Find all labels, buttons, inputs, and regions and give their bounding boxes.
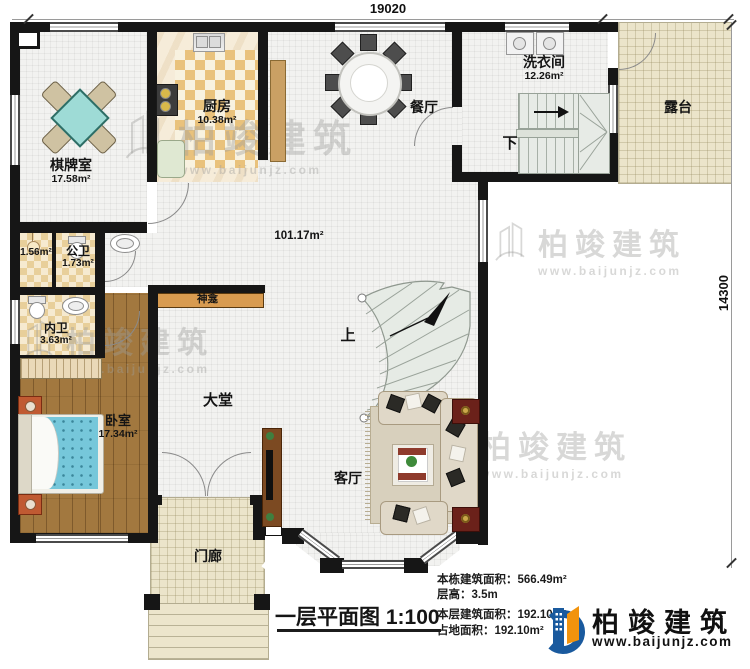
porch-pillar bbox=[254, 594, 270, 610]
room-area-bedroom: 17.34m² bbox=[90, 429, 146, 440]
nightstand bbox=[18, 494, 42, 515]
wall bbox=[258, 32, 268, 160]
info-value: 566.49m² bbox=[518, 574, 567, 586]
stairs-landing-lines bbox=[578, 93, 610, 172]
stove-burner bbox=[160, 101, 171, 112]
stairs-up-label: 上 bbox=[334, 328, 362, 344]
plant-stand bbox=[452, 399, 480, 424]
shrine-label: 神龛 bbox=[153, 294, 262, 305]
window bbox=[10, 95, 20, 165]
dimension-top: 19020 bbox=[356, 1, 420, 16]
info-line: 层高：3.5m bbox=[437, 586, 498, 602]
dining-table-center bbox=[350, 64, 388, 102]
porch-steps bbox=[148, 603, 269, 660]
room-label-porch: 门廊 bbox=[184, 549, 232, 564]
room-label-hall: 大堂 bbox=[192, 393, 244, 409]
room-label-chess: 棋牌室 bbox=[36, 158, 106, 173]
stairs-down-label: 下 bbox=[496, 136, 524, 152]
wall bbox=[452, 22, 462, 107]
porch-pillar bbox=[144, 594, 160, 610]
info-label: 本栋建筑面积： bbox=[437, 574, 518, 586]
stairs-down-flight bbox=[518, 137, 580, 174]
room-area-kitchen: 10.38m² bbox=[185, 115, 249, 126]
rug-fringe bbox=[365, 408, 370, 520]
dining-chair bbox=[360, 34, 377, 51]
small-room-area-label: 1.56m² bbox=[14, 248, 58, 259]
window bbox=[50, 22, 118, 32]
info-label: 占地面积： bbox=[437, 625, 495, 637]
plan-title-text: 一层平面图 bbox=[275, 606, 380, 629]
watermark-logo-icon bbox=[490, 220, 530, 262]
fridge bbox=[157, 140, 185, 178]
watermark-name: 柏竣建筑 bbox=[538, 220, 686, 264]
room-label-public-bath: 公卫 bbox=[58, 245, 98, 258]
bay-post bbox=[320, 558, 344, 573]
sink-basin bbox=[209, 36, 221, 48]
brand-url: www.baijunjz.com bbox=[592, 634, 733, 649]
washer-drum bbox=[543, 37, 556, 50]
tv bbox=[266, 450, 273, 500]
window bbox=[10, 300, 20, 344]
toilet-bowl bbox=[29, 302, 45, 319]
corner-column bbox=[16, 30, 40, 49]
pillow bbox=[449, 445, 467, 463]
wall bbox=[148, 495, 162, 505]
wash-basin-bowl bbox=[68, 301, 84, 311]
wash-basin-bowl bbox=[116, 238, 134, 249]
watermark-name: 柏竣建筑 bbox=[480, 422, 632, 467]
bed-sheet bbox=[32, 417, 59, 489]
watermark-url: www.baijunjz.com bbox=[480, 467, 632, 481]
room-label-terrace: 露台 bbox=[648, 100, 708, 115]
info-value: 3.5m bbox=[472, 589, 498, 601]
plant bbox=[406, 456, 417, 467]
sideboard-cabinet bbox=[270, 60, 286, 162]
wall bbox=[608, 22, 618, 32]
room-area-public-bath: 1.73m² bbox=[56, 259, 100, 270]
wall bbox=[10, 222, 147, 233]
runner-stripe bbox=[398, 473, 426, 480]
dimension-line-right bbox=[731, 22, 732, 568]
room-label-laundry: 洗衣间 bbox=[512, 55, 576, 70]
watermark: 柏竣建筑 www.baijunjz.com bbox=[490, 220, 686, 278]
plant bbox=[266, 513, 274, 521]
watermark-url: www.baijunjz.com bbox=[538, 264, 686, 278]
room-label-dining: 餐厅 bbox=[396, 100, 452, 115]
plant bbox=[266, 432, 274, 440]
room-area-laundry: 12.26m² bbox=[512, 71, 576, 82]
sink-basin bbox=[196, 36, 208, 48]
stove-burner bbox=[160, 88, 171, 99]
room-label-living: 客厅 bbox=[324, 471, 372, 486]
stairs-arrow bbox=[558, 106, 569, 118]
brand-logo-icon bbox=[541, 600, 589, 660]
window bbox=[505, 22, 569, 32]
dimension-line-top bbox=[12, 19, 734, 20]
info-label: 本层建筑面积： bbox=[437, 609, 518, 621]
window bbox=[478, 200, 488, 262]
wardrobe bbox=[20, 358, 102, 379]
plan-title: 一层平面图 1:100 bbox=[275, 601, 440, 631]
washer-drum bbox=[513, 37, 526, 50]
info-line: 本栋建筑面积：566.49m² bbox=[437, 571, 567, 587]
window bbox=[335, 22, 445, 32]
info-line: 占地面积：192.10m² bbox=[437, 622, 544, 638]
plant-stand bbox=[452, 507, 480, 532]
stairs-rail bbox=[516, 129, 582, 138]
info-value: 192.10m² bbox=[495, 625, 544, 637]
info-label: 层高： bbox=[437, 589, 472, 601]
stairs-arrow-tail bbox=[534, 111, 558, 113]
room-area-ensuite-bath: 3.63m² bbox=[32, 336, 80, 347]
title-underline bbox=[277, 629, 441, 632]
hall-area-label: 101.17m² bbox=[264, 230, 334, 242]
bed-headboard bbox=[18, 414, 32, 494]
wall bbox=[148, 285, 265, 293]
room-label-ensuite-bath: 内卫 bbox=[36, 322, 76, 335]
room-label-bedroom: 卧室 bbox=[96, 414, 140, 428]
bay-window bbox=[342, 560, 406, 569]
floor-plan-page: { "dimensions": { "top": "19020", "right… bbox=[0, 0, 750, 669]
plan-title-scale: 1:100 bbox=[386, 606, 440, 629]
room-area-chess: 17.58m² bbox=[36, 174, 106, 185]
wall bbox=[10, 287, 100, 295]
window bbox=[36, 534, 128, 543]
pillow bbox=[405, 393, 423, 411]
dimension-right: 14300 bbox=[716, 275, 731, 311]
room-label-kitchen: 厨房 bbox=[185, 99, 249, 114]
runner-stripe bbox=[398, 448, 426, 455]
